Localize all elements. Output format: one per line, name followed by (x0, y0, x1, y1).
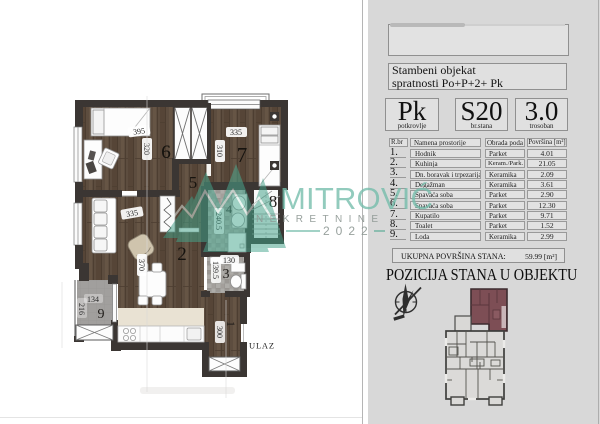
svg-text:7: 7 (237, 143, 248, 167)
svg-text:310: 310 (215, 145, 224, 157)
svg-text:335: 335 (230, 128, 242, 137)
svg-text:216: 216 (77, 303, 86, 315)
svg-text:370: 370 (137, 259, 146, 271)
svg-text:300: 300 (215, 326, 224, 338)
svg-text:5: 5 (189, 173, 198, 192)
svg-text:2022: 2022 (323, 224, 374, 238)
svg-text:9: 9 (98, 307, 105, 322)
svg-text:ULAZ: ULAZ (249, 341, 275, 351)
svg-text:MITROVIĆ: MITROVIĆ (280, 181, 433, 216)
svg-text:2: 2 (177, 244, 187, 265)
svg-text:139.5: 139.5 (211, 261, 220, 279)
svg-text:6: 6 (161, 142, 171, 163)
svg-text:320: 320 (142, 143, 151, 155)
svg-text:130: 130 (223, 256, 235, 265)
svg-text:134: 134 (87, 295, 99, 304)
svg-text:395: 395 (133, 126, 146, 137)
svg-text:3: 3 (223, 267, 230, 282)
